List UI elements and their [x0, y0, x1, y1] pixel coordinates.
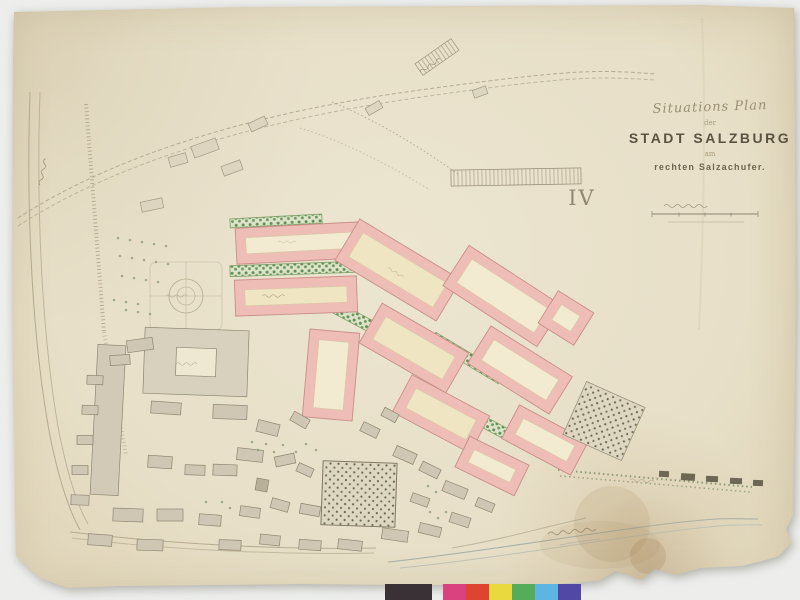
map-subtitle: rechten Salzachufer. — [628, 162, 792, 172]
sheet-number: IV — [560, 186, 604, 210]
connector-der: der — [628, 119, 792, 127]
mirabell-gardens — [150, 262, 222, 330]
color-patch-green — [512, 584, 535, 600]
color-patch-magenta — [443, 584, 466, 600]
color-patch-cyan — [535, 584, 558, 600]
color-patch-dark-gray — [385, 584, 432, 600]
map-title: STADT SALZBURG — [628, 130, 792, 146]
paper-stains — [540, 486, 666, 574]
scale-bar — [652, 211, 758, 222]
connector-am: am — [628, 150, 792, 158]
cemetery-square — [321, 461, 397, 528]
map-script-title: Situations Plan — [628, 97, 792, 118]
paper-sheet: Situations Plan der STADT SALZBURG am re… — [0, 0, 800, 600]
outskirt-buildings — [140, 86, 488, 212]
church — [255, 478, 269, 492]
scan-background: Situations Plan der STADT SALZBURG am re… — [0, 0, 800, 600]
color-patch-red — [466, 584, 489, 600]
station-building — [415, 39, 459, 76]
color-patch-violet — [558, 584, 581, 600]
color-calibration-bar — [385, 584, 581, 600]
title-block: Situations Plan der STADT SALZBURG am re… — [628, 100, 792, 172]
map-sheet: Situations Plan der STADT SALZBURG am re… — [0, 0, 800, 600]
station-structure — [451, 168, 581, 186]
color-patch-yellow — [489, 584, 512, 600]
paper-crease — [699, 18, 704, 330]
mirabell-palace — [143, 327, 249, 397]
map-drawing — [0, 0, 800, 600]
